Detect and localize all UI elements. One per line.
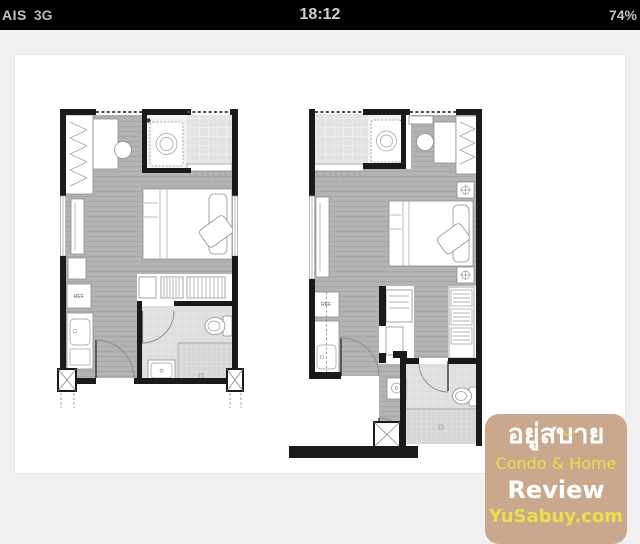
- watermark-site-url: YuSabuy.com: [485, 506, 627, 528]
- desk: [93, 119, 118, 169]
- battery-percent-label: 74%: [609, 7, 640, 23]
- chair: [417, 134, 434, 151]
- tv-panel: [71, 199, 84, 254]
- floor-plan-right: REF.: [281, 101, 491, 467]
- pantry-cabinet: [386, 290, 412, 322]
- watermark-review-label: Review: [485, 476, 627, 504]
- photo-viewer-image[interactable]: REF.: [14, 54, 626, 474]
- shelf: [409, 116, 433, 124]
- smiley-icon: ◡: [563, 412, 575, 446]
- washing-machine: [150, 122, 183, 166]
- watermark-thai-title: อยู่สบาย◡: [485, 418, 627, 452]
- kitchen-counter: [67, 313, 93, 369]
- bottom-wall-bar: [289, 446, 418, 458]
- ref-label-left: REF.: [74, 294, 85, 300]
- tv-panel: [316, 197, 329, 277]
- balcony-sliding-door: [314, 164, 364, 171]
- desk: [434, 122, 456, 163]
- balcony-sliding-door: [187, 164, 232, 171]
- floor-plan-left: REF.: [49, 101, 253, 413]
- watermark-subtitle: Condo & Home: [485, 454, 627, 474]
- yusabuy-watermark: อยู่สบาย◡ Condo & Home Review YuSabuy.co…: [485, 414, 627, 544]
- clock-label: 18:12: [0, 6, 640, 24]
- chair: [115, 142, 132, 159]
- washing-machine: [371, 120, 402, 162]
- wardrobe: [456, 116, 479, 174]
- status-bar: AIS 3G 18:12 74%: [0, 0, 640, 30]
